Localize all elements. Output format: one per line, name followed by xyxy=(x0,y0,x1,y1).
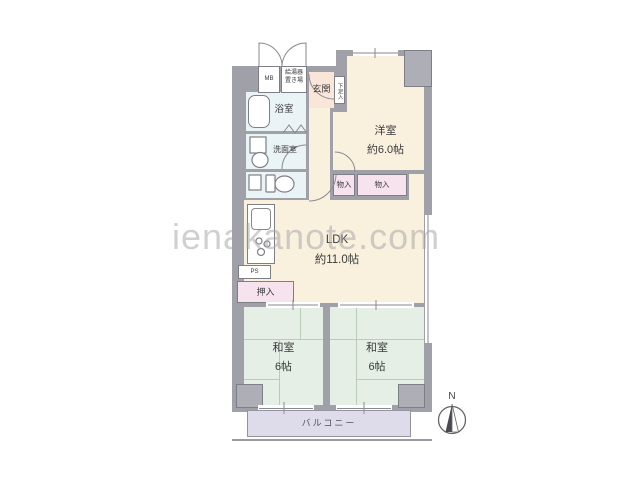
washroom-label: 洗面室 xyxy=(264,145,306,155)
shoe-storage-label: 下足入 xyxy=(336,79,343,103)
compass-circle xyxy=(439,407,466,434)
watermark: ienakanote.com xyxy=(172,216,440,258)
balcony-edge-line xyxy=(232,439,432,441)
tatami-line xyxy=(300,307,301,339)
japanese-room-b-label: 和室 6帖 xyxy=(330,339,424,378)
japanese-room-a-size: 6帖 xyxy=(244,358,323,377)
futon-closet-label: 押入 xyxy=(237,281,294,303)
ldk-sliver xyxy=(409,174,424,202)
compass: N xyxy=(432,386,472,442)
japanese-room-b-name: 和室 xyxy=(330,339,424,358)
tatami-line xyxy=(356,307,357,339)
compass-needle-dark xyxy=(446,404,453,432)
room-toilet xyxy=(246,172,306,198)
water-heater-line2: 置き場 xyxy=(281,78,307,86)
japanese-room-a-name: 和室 xyxy=(244,339,323,358)
pipe-space-label: PS xyxy=(238,265,271,279)
water-heater-line1: 給湯器 xyxy=(281,70,307,78)
tatami-line xyxy=(244,379,279,380)
pillar-bottom-right xyxy=(398,384,425,408)
tatami-line xyxy=(356,379,424,380)
hallway xyxy=(309,108,330,204)
compass-north-label: N xyxy=(448,391,455,402)
western-room-name: 洋室 xyxy=(347,122,424,141)
pillar-top-right xyxy=(404,50,432,87)
sliding-door-ldk-japanese-b xyxy=(338,302,414,308)
bathroom-label: 浴室 xyxy=(262,104,306,115)
storage-a-label: 物入 xyxy=(333,174,355,196)
japanese-room-b-size: 6帖 xyxy=(330,358,424,377)
meter-box-label: MB xyxy=(258,66,280,93)
western-room-label: 洋室 約6.0帖 xyxy=(347,122,424,161)
floor-plan: MB 給湯器 置き場 玄関 下足入 浴室 洗面室 洋室 約6.0帖 物入 物入 … xyxy=(0,0,640,480)
storage-b-label: 物入 xyxy=(357,174,407,196)
entrance-label: 玄関 xyxy=(308,84,335,95)
compass-needle-light xyxy=(452,404,459,432)
balcony-label: バルコニー xyxy=(247,410,411,437)
exterior-cutout xyxy=(224,38,336,66)
japanese-room-a-label: 和室 6帖 xyxy=(244,339,323,378)
window-western-top xyxy=(353,50,398,56)
water-heater-label: 給湯器 置き場 xyxy=(281,70,307,86)
western-room-size: 約6.0帖 xyxy=(347,141,424,160)
